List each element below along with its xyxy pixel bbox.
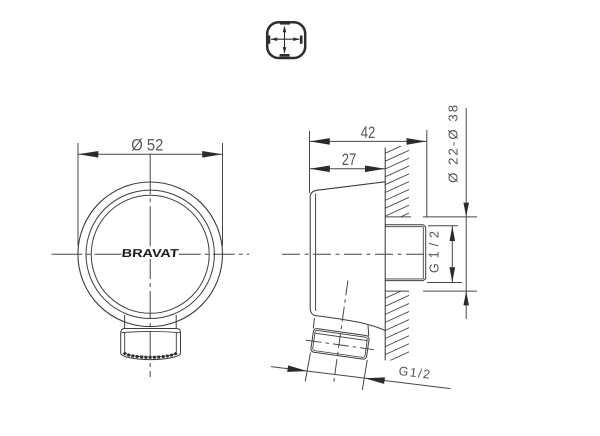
- svg-text:Ø 22-Ø 38: Ø 22-Ø 38: [446, 105, 461, 183]
- svg-text:42: 42: [361, 124, 376, 142]
- svg-text:27: 27: [342, 151, 357, 169]
- svg-text:Ø 52: Ø 52: [131, 137, 163, 155]
- svg-text:BRAVAT: BRAVAT: [121, 248, 179, 260]
- svg-text:G1/2: G1/2: [428, 231, 442, 273]
